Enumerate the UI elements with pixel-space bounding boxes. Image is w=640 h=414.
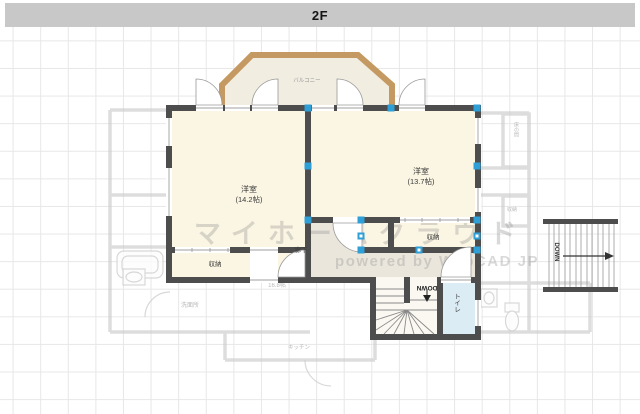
alcove-label: 床の間	[513, 121, 519, 138]
room-right-floor[interactable]	[308, 108, 478, 220]
kitchen-label: キッチン	[288, 344, 311, 351]
closet-left-label: 収納	[209, 259, 222, 268]
handle[interactable]	[474, 105, 481, 112]
stairs-right-arrow	[563, 252, 614, 260]
handle[interactable]	[474, 217, 481, 224]
stairs-right-down-label: DOWN	[553, 243, 559, 262]
door-arc-1f-kitchen	[305, 360, 331, 386]
handle[interactable]	[305, 105, 312, 112]
room-right-name: 洋室	[413, 166, 429, 176]
handle[interactable]	[358, 217, 365, 224]
handle[interactable]	[474, 247, 481, 254]
balcony-door-arc	[399, 79, 425, 105]
balcony-door-arc	[196, 79, 222, 105]
handle[interactable]	[305, 163, 312, 170]
room-left-area: (14.2帖)	[235, 194, 263, 204]
handle[interactable]	[388, 105, 395, 112]
app-canvas: 2F 洗面所 キッチン 16.8帖 収納 床の間	[0, 0, 640, 414]
room-left-floor[interactable]	[169, 108, 308, 280]
door-arc-1f-washroom	[145, 292, 170, 317]
handle[interactable]	[305, 217, 312, 224]
handle[interactable]	[474, 163, 481, 170]
closet-right-label: 収納	[427, 232, 440, 241]
watermark-powered: powered by WebCAD JP	[335, 253, 539, 270]
stair-stub-wall	[404, 277, 410, 303]
closet-passage	[250, 253, 278, 279]
floor-plan-svg: 洗面所 キッチン 16.8帖 収納 床の間 マイホームクラウド powered …	[0, 0, 640, 414]
room-right-area: (13.7帖)	[407, 176, 435, 186]
closet-1f-label: 収納	[507, 206, 517, 213]
stairs-right[interactable]: DOWN	[543, 219, 618, 292]
handle[interactable]	[358, 247, 365, 254]
washroom-label: 洗面所	[181, 301, 199, 309]
hallway-label: 廊下	[295, 245, 309, 254]
room-left-name: 洋室	[241, 184, 257, 194]
balcony-label: バルコニー	[293, 77, 320, 84]
